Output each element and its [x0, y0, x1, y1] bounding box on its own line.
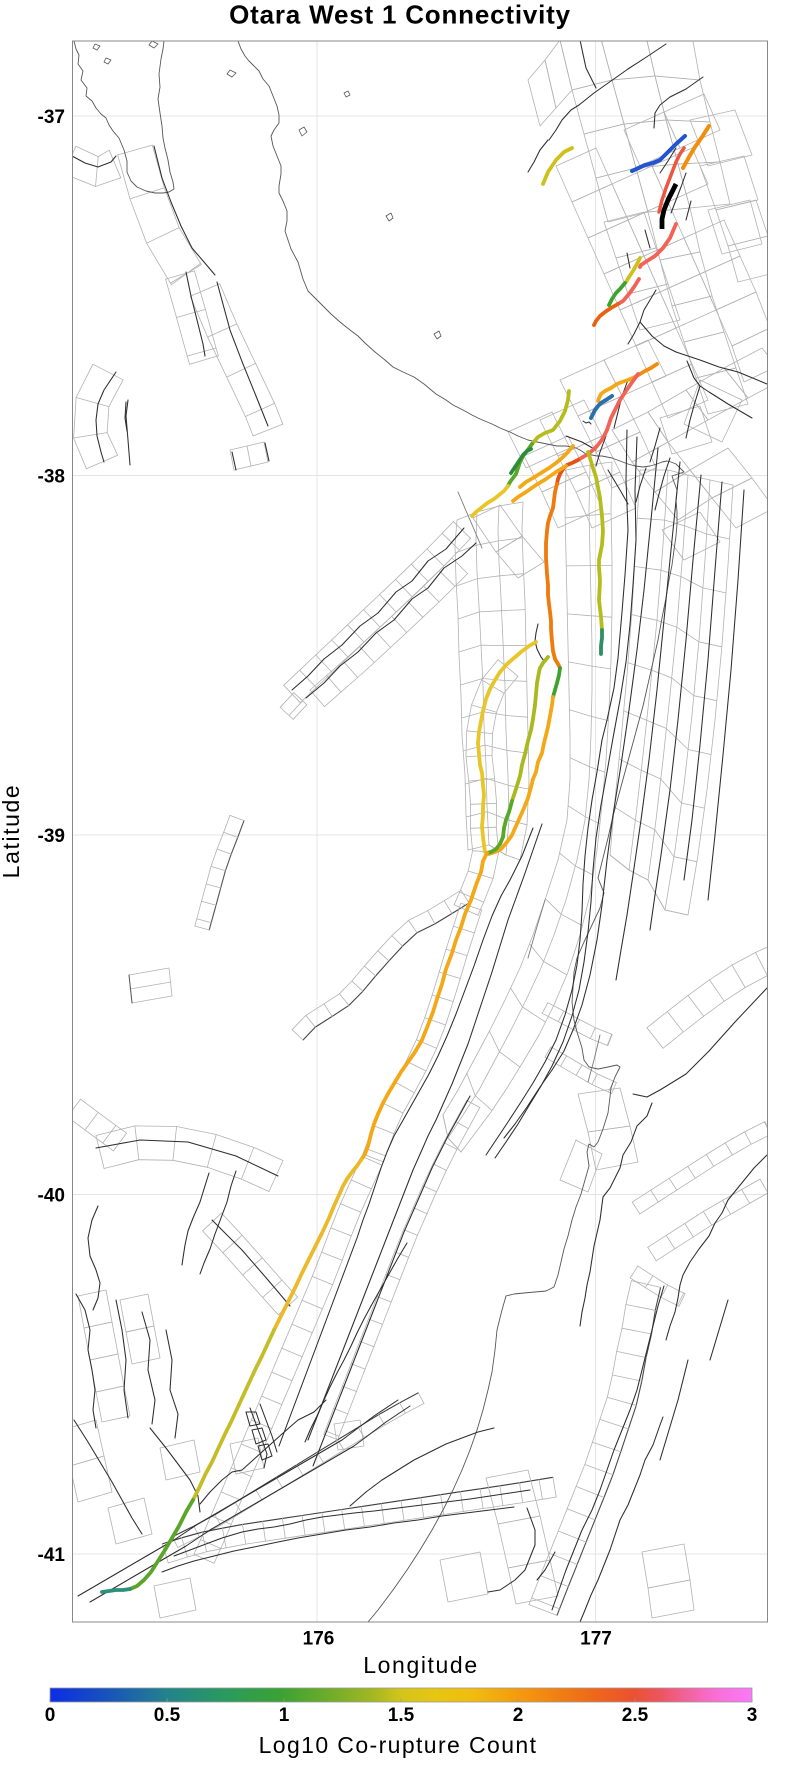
- svg-text:2: 2: [513, 1705, 524, 1726]
- svg-text:Latitude: Latitude: [0, 784, 24, 879]
- svg-text:2.5: 2.5: [622, 1705, 649, 1726]
- svg-text:Otara West 1 Connectivity: Otara West 1 Connectivity: [229, 0, 571, 30]
- svg-text:-41: -41: [38, 1545, 66, 1566]
- svg-text:Log10 Co-rupture Count: Log10 Co-rupture Count: [259, 1732, 538, 1758]
- svg-text:177: 177: [580, 1629, 612, 1650]
- svg-text:-37: -37: [38, 107, 65, 128]
- svg-text:Longitude: Longitude: [363, 1652, 478, 1678]
- svg-text:1.5: 1.5: [388, 1705, 415, 1726]
- svg-text:-38: -38: [38, 467, 65, 488]
- svg-text:0: 0: [45, 1705, 56, 1726]
- svg-text:0.5: 0.5: [154, 1705, 181, 1726]
- svg-text:176: 176: [303, 1629, 335, 1650]
- svg-text:-40: -40: [38, 1186, 65, 1207]
- svg-text:1: 1: [279, 1705, 290, 1726]
- svg-text:-39: -39: [38, 826, 65, 847]
- svg-text:3: 3: [747, 1705, 758, 1726]
